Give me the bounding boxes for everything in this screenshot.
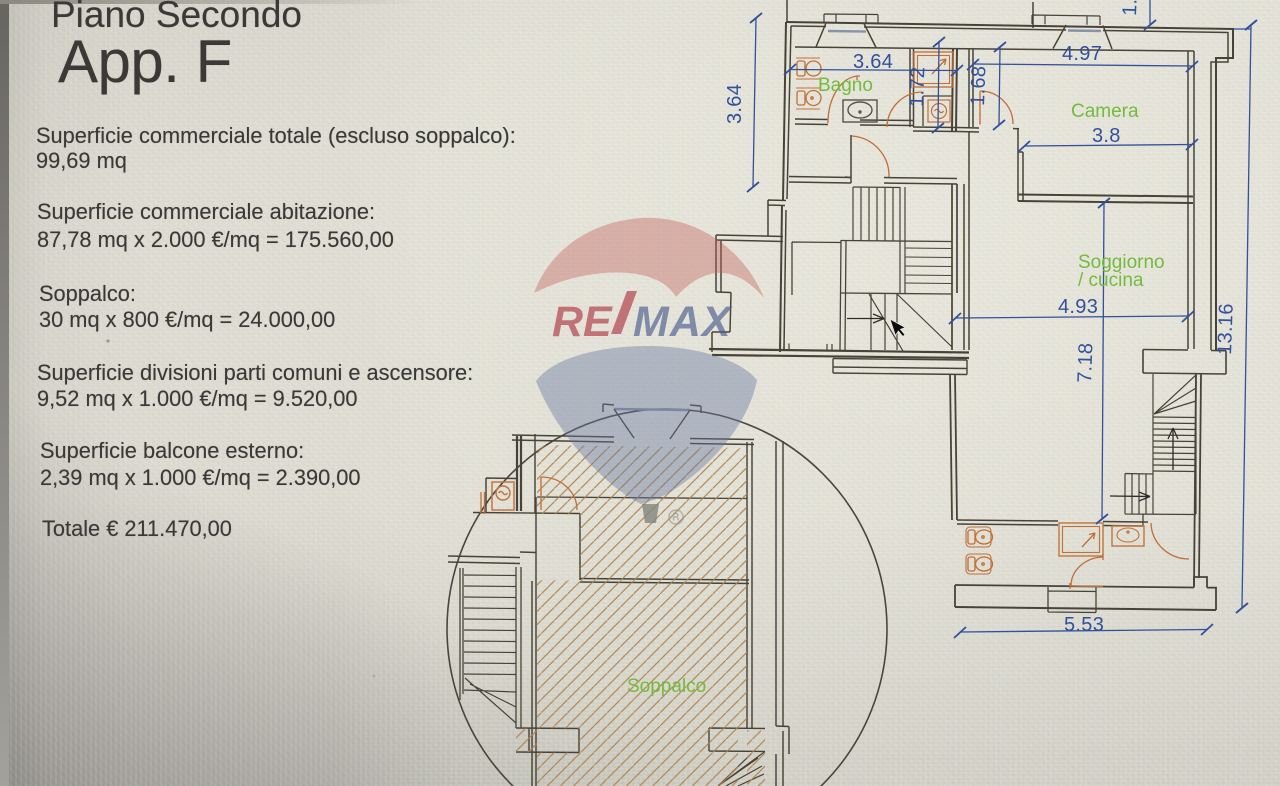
svg-text:4.97: 4.97 [1062, 43, 1102, 65]
svg-text:7.18: 7.18 [1074, 342, 1097, 383]
svg-text:3.64: 3.64 [724, 84, 746, 124]
svg-text:3.8: 3.8 [1092, 125, 1121, 147]
svg-text:1.72: 1.72 [906, 66, 929, 107]
svg-text:RE: RE [552, 298, 613, 346]
svg-text:5.53: 5.53 [1064, 614, 1104, 636]
svg-text:1.1: 1.1 [1119, 0, 1142, 16]
svg-text:4.93: 4.93 [1058, 296, 1098, 318]
svg-text:MAX: MAX [633, 298, 733, 346]
svg-text:Bagno: Bagno [818, 75, 873, 96]
svg-text:/ cucina: / cucina [1078, 270, 1144, 291]
svg-text:3.64: 3.64 [853, 51, 893, 73]
svg-text:13.16: 13.16 [1214, 303, 1238, 355]
svg-text:Camera: Camera [1071, 101, 1139, 122]
svg-text:Soppalco: Soppalco [627, 676, 706, 697]
svg-text:1.68: 1.68 [967, 65, 990, 106]
